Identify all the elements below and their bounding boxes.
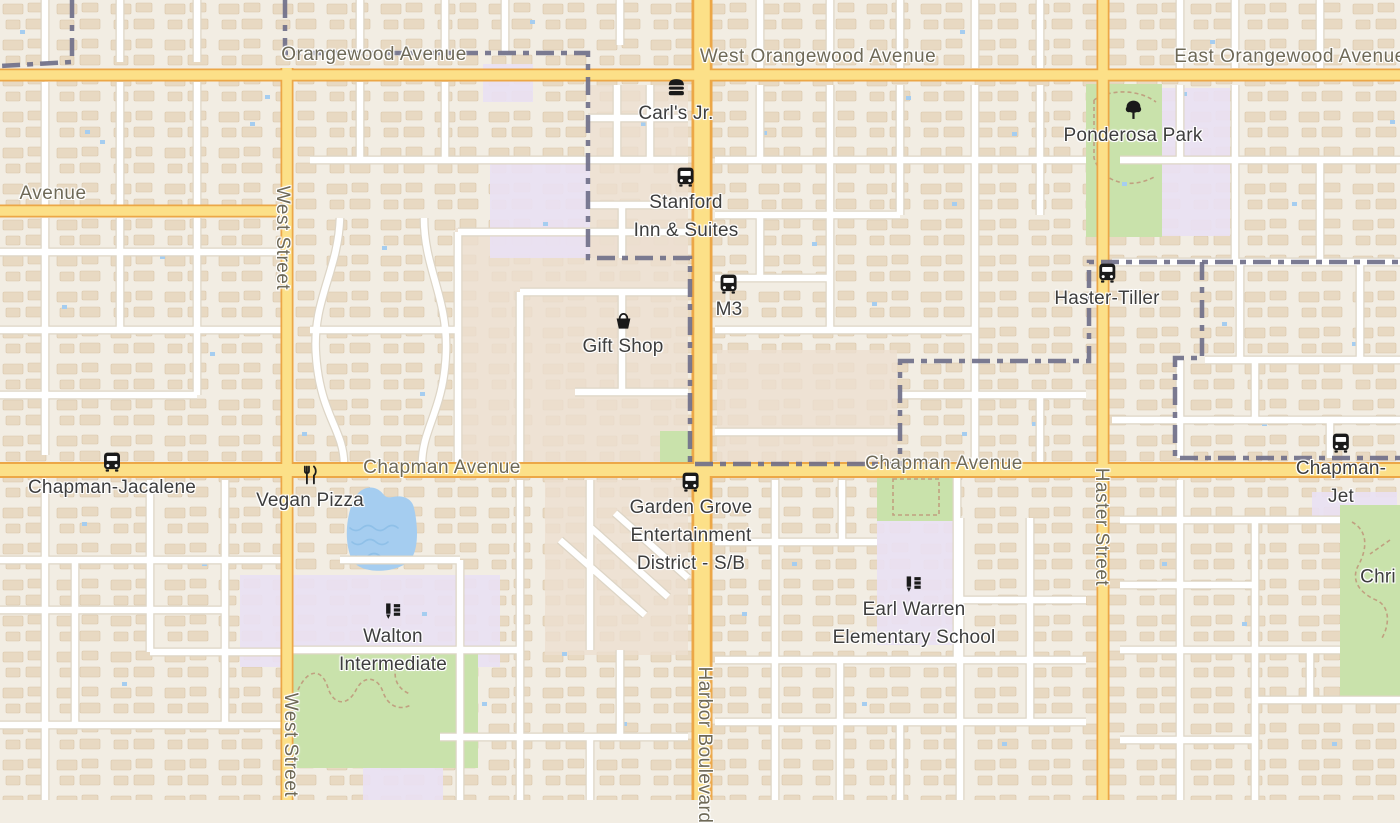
- tree-icon: [1122, 99, 1144, 121]
- poi-label: Vegan Pizza: [256, 487, 364, 515]
- bus-icon: [675, 166, 697, 188]
- school-icon: [382, 600, 404, 622]
- poi-m3-bus-stop[interactable]: M3: [716, 273, 743, 324]
- fast-food-icon: [665, 77, 687, 99]
- poi-garden-grove-entertainment-district[interactable]: Garden Grove Entertainment District - S/…: [630, 471, 753, 578]
- shop-icon: [612, 310, 634, 332]
- poi-stanford-inn-suites[interactable]: Stanford Inn & Suites: [634, 166, 739, 245]
- poi-label: M3: [716, 296, 743, 324]
- poi-haster-tiller[interactable]: Haster-Tiller: [1054, 262, 1159, 313]
- bus-icon: [1096, 262, 1118, 284]
- bus-icon: [1330, 432, 1352, 454]
- school-icon: [903, 573, 925, 595]
- poi-vegan-pizza[interactable]: Vegan Pizza: [256, 464, 364, 515]
- poi-carls-jr[interactable]: Carl's Jr.: [638, 77, 713, 128]
- poi-label: Chapman-Jacalene: [28, 474, 196, 502]
- restaurant-icon: [299, 464, 321, 486]
- poi-chapman-jet[interactable]: Chapman-Jet: [1296, 432, 1386, 511]
- poi-label: Gift Shop: [582, 333, 663, 361]
- poi-walton-intermediate[interactable]: Walton Intermediate: [339, 600, 447, 679]
- bus-icon: [680, 471, 702, 493]
- poi-label: Carl's Jr.: [638, 100, 713, 128]
- poi-label: Chapman-Jet: [1296, 455, 1386, 511]
- bus-icon: [718, 273, 740, 295]
- bus-icon: [101, 451, 123, 473]
- poi-label: Chri: [1360, 564, 1396, 592]
- poi-label: Haster-Tiller: [1054, 285, 1159, 313]
- poi-label: Stanford Inn & Suites: [634, 189, 739, 245]
- poi-label: Ponderosa Park: [1063, 122, 1202, 150]
- poi-label: Walton Intermediate: [339, 623, 447, 679]
- poi-gift-shop[interactable]: Gift Shop: [582, 310, 663, 361]
- poi-ponderosa-park[interactable]: Ponderosa Park: [1063, 99, 1202, 150]
- poi-label: Garden Grove Entertainment District - S/…: [630, 494, 753, 578]
- poi-chapman-jacalene[interactable]: Chapman-Jacalene: [28, 451, 196, 502]
- poi-label: Earl Warren Elementary School: [833, 596, 996, 652]
- poi-earl-warren-elementary[interactable]: Earl Warren Elementary School: [833, 573, 996, 652]
- poi-chri-partial[interactable]: Chri: [1360, 563, 1396, 592]
